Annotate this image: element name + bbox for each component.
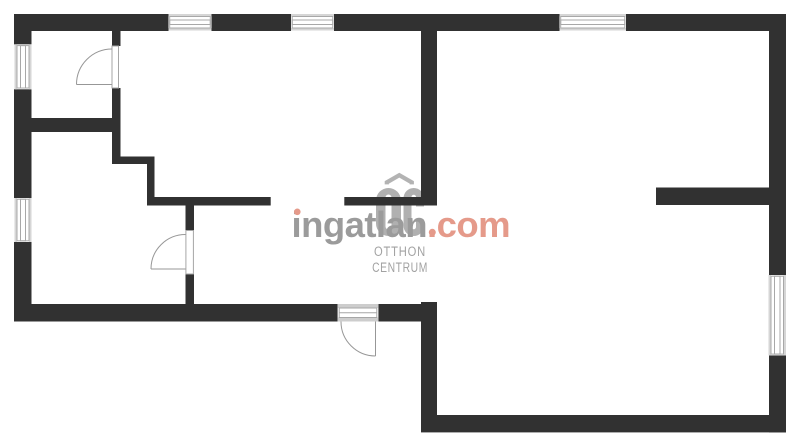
svg-text:ingatlan.com: ingatlan.com bbox=[292, 204, 511, 245]
svg-text:CENTRUM: CENTRUM bbox=[372, 259, 428, 275]
svg-text:OTTHON: OTTHON bbox=[374, 244, 426, 259]
